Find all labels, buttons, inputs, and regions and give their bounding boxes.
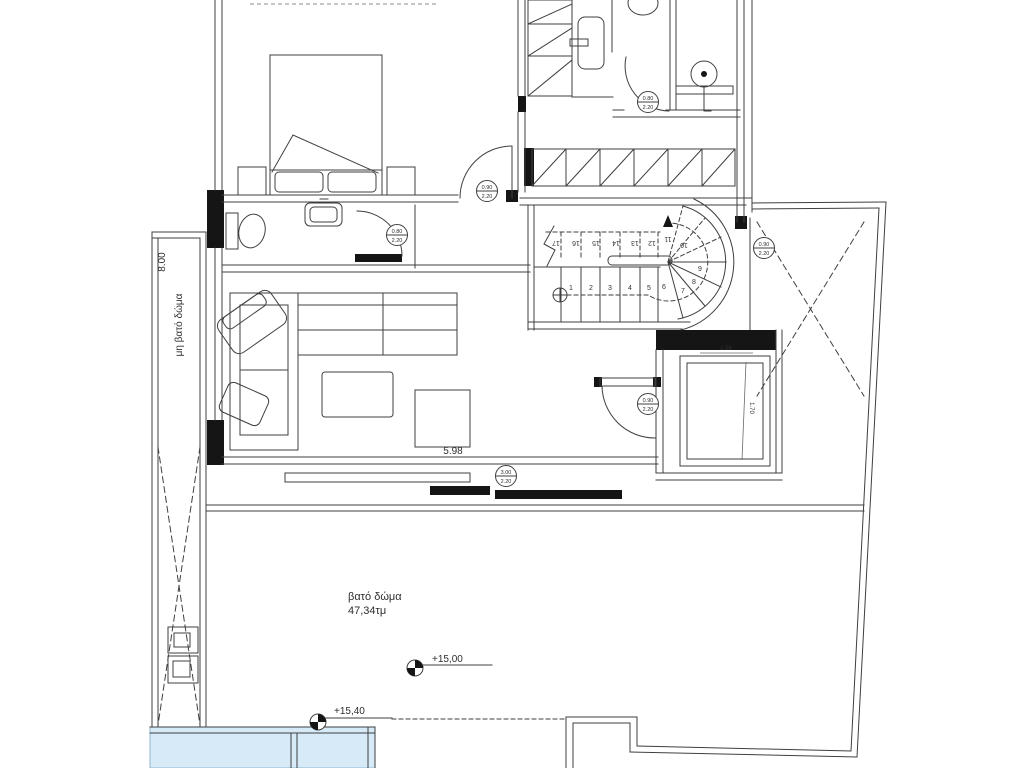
- svg-text:0.80: 0.80: [392, 229, 403, 235]
- side-table: [415, 390, 470, 447]
- svg-text:14: 14: [612, 239, 620, 246]
- bed-blanket-fold: [272, 135, 378, 173]
- walls: [215, 0, 782, 482]
- floor-plan: 8.00 μη βατό δώμα: [0, 0, 1024, 768]
- svg-text:8: 8: [692, 279, 696, 286]
- svg-text:17: 17: [552, 239, 560, 246]
- pillow-right: [328, 172, 376, 192]
- svg-text:2.20: 2.20: [501, 479, 512, 485]
- svg-text:2: 2: [589, 285, 593, 292]
- left-dimension-label: 8.00: [157, 252, 168, 272]
- terrace-outline: [206, 202, 886, 768]
- svg-text:7: 7: [681, 288, 685, 295]
- svg-text:12: 12: [648, 239, 656, 246]
- walk-arrow: [663, 215, 673, 227]
- door-tag-terrace: 0.90 2.20: [754, 238, 775, 259]
- wc-room: [226, 199, 342, 251]
- svg-text:13: 13: [631, 239, 639, 246]
- level-lower-label: +15,40: [334, 706, 365, 717]
- svg-text:3.00: 3.00: [501, 470, 512, 476]
- door-tag-slider: 3.00 2.20: [496, 466, 517, 487]
- vanity: [570, 17, 604, 69]
- svg-text:9: 9: [698, 266, 702, 273]
- svg-text:5: 5: [647, 285, 651, 292]
- sliding-panel-b: [495, 490, 622, 499]
- svg-text:2.20: 2.20: [392, 238, 403, 244]
- svg-text:0.80: 0.80: [643, 96, 654, 102]
- svg-text:2.20: 2.20: [643, 105, 654, 111]
- lobby-door-leaf: [600, 378, 655, 386]
- door-tag-lobby: 0.90 2.20: [638, 394, 659, 415]
- sliding-panel-a: [430, 486, 490, 495]
- elevator-car: [680, 356, 770, 466]
- svg-text:11: 11: [664, 235, 671, 242]
- lounge-chair: [217, 380, 270, 427]
- svg-text:4: 4: [628, 285, 632, 292]
- toilet-tank: [226, 213, 238, 249]
- living-dimension-label: 5.98: [443, 446, 463, 457]
- bath-cabinet: [528, 0, 572, 96]
- door-tag-wc: 0.80 2.20: [387, 225, 408, 246]
- toilet-bowl: [235, 211, 268, 250]
- bed: [270, 55, 382, 195]
- svg-text:2.20: 2.20: [482, 194, 493, 200]
- left-strip: 8.00 μη βατό δώμα: [152, 232, 206, 727]
- svg-text:6: 6: [662, 284, 666, 291]
- wardrobe: [532, 149, 735, 186]
- svg-text:15: 15: [592, 239, 600, 246]
- elevator: 1.56 1.70: [680, 346, 770, 466]
- left-strip-label: μη βατό δώμα: [173, 293, 185, 356]
- level-marker-lower: +15,40: [310, 706, 566, 730]
- sliding-panel-c: [285, 473, 470, 482]
- svg-text:0.90: 0.90: [643, 398, 654, 404]
- elevator-depth-label: 1.70: [748, 402, 754, 414]
- doors: [357, 57, 669, 438]
- svg-text:10: 10: [680, 241, 688, 248]
- terrace-name-label: βατό δώμα: [348, 591, 402, 603]
- svg-text:0.90: 0.90: [759, 242, 770, 248]
- svg-text:16: 16: [572, 239, 580, 246]
- door-tag-bath: 0.80 2.20: [638, 92, 659, 113]
- elevator-width-label: 1.56: [720, 346, 732, 352]
- level-upper-label: +15,00: [432, 654, 463, 665]
- bathroom: [528, 0, 733, 111]
- shower: [676, 61, 733, 111]
- sink: [305, 203, 342, 226]
- svg-text:0.90: 0.90: [482, 185, 493, 191]
- coffee-table: [322, 372, 393, 417]
- black-walls: [207, 96, 776, 499]
- level-marker-upper: +15,00: [407, 654, 492, 676]
- nightstand-left: [238, 167, 266, 195]
- nightstand-right: [387, 167, 415, 195]
- svg-text:3: 3: [608, 285, 612, 292]
- bedroom: [238, 55, 415, 195]
- step-number: 1: [569, 285, 573, 292]
- svg-text:2.20: 2.20: [759, 251, 770, 257]
- door-tag-bedroom: 0.90 2.20: [477, 181, 498, 202]
- pool: [150, 727, 375, 768]
- staircase: 1 2 3 4 5 6 7 8 9 17 16 15 14 13 12 11 1…: [534, 199, 734, 330]
- svg-text:2.20: 2.20: [643, 407, 654, 413]
- living-room: [214, 287, 470, 450]
- wc-door-leaf: [355, 254, 402, 262]
- toilet-top: [628, 0, 658, 15]
- armchair: [214, 287, 289, 356]
- terrace-area-label: 47,34τμ: [348, 605, 386, 617]
- pillow-left: [275, 172, 323, 192]
